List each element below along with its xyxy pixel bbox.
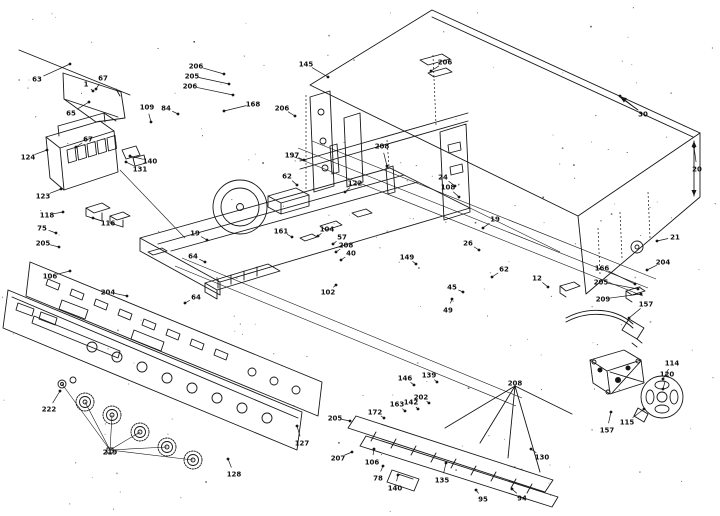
part-label-95: 95: [478, 496, 488, 504]
noise-dot: [627, 152, 628, 153]
noise-dot: [666, 137, 667, 138]
part-label-139: 139: [422, 372, 437, 380]
screw-dot: [445, 462, 448, 465]
screw-dot: [610, 411, 613, 414]
noise-dot: [550, 465, 551, 466]
noise-dot: [562, 147, 564, 149]
noise-dot: [59, 235, 60, 236]
screw-dot: [223, 73, 226, 76]
noise-dot: [636, 82, 637, 83]
noise-dot: [205, 481, 207, 483]
part-label-206: 206: [183, 83, 198, 91]
noise-dot: [328, 35, 330, 37]
noise-dot: [591, 429, 593, 431]
screw-dot: [69, 63, 72, 66]
noise-dot: [244, 56, 245, 57]
screw-dot: [373, 448, 376, 451]
screw-dot: [46, 149, 49, 152]
noise-dot: [28, 88, 29, 89]
part-label-21: 21: [670, 234, 680, 242]
part-label-205: 205: [185, 73, 200, 81]
leader-line: [224, 106, 246, 111]
knobs-drawing: [58, 377, 202, 469]
noise-dot: [420, 306, 421, 307]
noise-dot: [574, 178, 575, 179]
noise-dot: [18, 79, 20, 81]
noise-dot: [407, 180, 409, 182]
screw-dot: [59, 390, 62, 393]
noise-dot: [544, 222, 545, 223]
part-label-114: 114: [665, 360, 680, 368]
screw-dot: [404, 410, 407, 413]
part-label-75: 75: [37, 225, 47, 233]
part-label-30: 30: [638, 111, 648, 119]
part-label-78: 78: [373, 475, 383, 483]
screw-dot: [646, 269, 649, 272]
noise-dot: [619, 389, 620, 390]
screw-dot: [60, 188, 63, 191]
noise-dot: [569, 467, 570, 468]
noise-dot: [167, 434, 168, 435]
leader-line: [115, 293, 127, 296]
noise-dot: [670, 92, 672, 94]
cabinet-drawing: [310, 10, 700, 302]
screw-dot: [643, 408, 646, 411]
noise-dot: [650, 321, 652, 323]
noise-dot: [353, 59, 355, 61]
part-label-106: 106: [365, 459, 380, 467]
screw-dot: [340, 259, 343, 262]
part-label-1: 1: [84, 81, 89, 89]
part-label-102: 102: [321, 289, 336, 297]
screw-dot: [228, 83, 231, 86]
screw-dot: [478, 249, 481, 252]
noise-dot: [562, 72, 563, 73]
part-label-205: 205: [594, 279, 609, 287]
screw-dot: [92, 90, 95, 93]
noise-dot: [593, 342, 594, 343]
noise-dot: [295, 160, 296, 161]
screw-dot: [62, 211, 65, 214]
noise-dot: [234, 331, 235, 332]
noise-dot: [363, 395, 364, 396]
leader-line: [35, 150, 47, 155]
noise-dot: [551, 296, 552, 297]
noise-dot: [32, 19, 33, 20]
screw-dot: [303, 159, 306, 162]
noise-dot: [236, 278, 237, 279]
noise-dot: [504, 439, 505, 440]
part-label-197: 197: [285, 152, 300, 160]
noise-dot: [81, 93, 82, 94]
noise-dot: [559, 164, 560, 165]
screw-dot: [125, 161, 128, 164]
screw-dot: [415, 263, 418, 266]
screw-dot: [382, 465, 385, 468]
screw-dot: [227, 458, 230, 461]
noise-dot: [158, 48, 159, 49]
part-label-67: 67: [98, 75, 108, 83]
part-label-206: 206: [189, 63, 204, 71]
part-label-209: 209: [596, 296, 611, 304]
noise-dot: [108, 348, 109, 349]
noise-dot: [400, 162, 401, 163]
screw-dot: [232, 94, 235, 97]
screw-dot: [223, 110, 226, 113]
screw-dot: [317, 235, 320, 238]
noise-dot: [13, 334, 14, 335]
noise-dot: [116, 473, 118, 475]
noise-dot: [381, 454, 382, 455]
part-label-128: 128: [227, 471, 242, 479]
part-label-208: 208: [375, 143, 390, 151]
screw-dot: [92, 217, 95, 220]
noise-dot: [455, 469, 457, 471]
noise-dot: [550, 495, 551, 496]
noise-dot: [113, 509, 114, 510]
noise-dot: [92, 477, 93, 478]
leader-line: [608, 271, 635, 284]
leader-line: [50, 245, 59, 247]
noise-dot: [52, 13, 53, 14]
noise-dot: [462, 446, 463, 447]
noise-dot: [387, 230, 389, 232]
part-label-204: 204: [656, 259, 671, 267]
noise-dot: [715, 203, 716, 204]
noise-dot: [390, 511, 391, 512]
part-label-205: 205: [328, 415, 343, 423]
rear-panel-drawing: [348, 386, 572, 507]
noise-dot: [631, 64, 632, 65]
screw-dot: [344, 191, 347, 194]
part-label-135: 135: [435, 477, 450, 485]
leader-line: [312, 68, 328, 77]
screw-dot: [436, 381, 439, 384]
noise-dot: [216, 277, 218, 279]
noise-dot: [671, 217, 672, 218]
noise-dot: [193, 41, 195, 43]
part-labels-layer: 6316765124671231401311181167520520620520…: [21, 59, 702, 504]
noise-dot: [468, 387, 470, 389]
part-label-124: 124: [21, 154, 36, 162]
noise-dot: [443, 31, 444, 32]
screw-dot: [451, 298, 454, 301]
noise-dot: [105, 434, 106, 435]
screw-dot: [69, 270, 72, 273]
part-label-19: 19: [190, 230, 200, 238]
noise-dot: [410, 218, 411, 219]
noise-dot: [262, 162, 264, 164]
noise-dot: [477, 12, 478, 13]
noise-dot: [413, 218, 414, 219]
noise-dot: [453, 301, 454, 302]
noise-dot: [324, 145, 325, 146]
noise-dot: [608, 149, 609, 150]
part-label-208: 208: [339, 242, 354, 250]
part-label-94: 94: [517, 495, 527, 503]
noise-dot: [488, 435, 489, 436]
leader-line: [633, 409, 644, 418]
noise-dot: [175, 93, 176, 94]
dial-block-drawing: [46, 113, 146, 227]
noise-dot: [515, 205, 516, 206]
screw-dot: [656, 240, 659, 243]
noise-dot: [475, 222, 477, 224]
screw-dot: [634, 283, 637, 286]
part-label-131: 131: [133, 166, 148, 174]
part-label-204: 204: [101, 289, 116, 297]
noise-dot: [553, 135, 554, 136]
noise-dot: [611, 213, 613, 215]
noise-dot: [635, 277, 637, 279]
noise-dot: [573, 164, 575, 166]
screw-dot: [204, 261, 207, 264]
part-label-208: 208: [508, 380, 523, 388]
screw-dot: [327, 76, 330, 79]
part-label-108: 108: [441, 184, 456, 192]
noise-dot: [133, 363, 134, 364]
noise-dot: [306, 356, 307, 357]
screw-dot: [332, 243, 335, 246]
screw-dot: [206, 239, 209, 242]
part-label-120: 120: [660, 371, 675, 379]
part-label-67: 67: [83, 136, 93, 144]
screw-dot: [397, 474, 400, 477]
leader-line: [629, 308, 641, 318]
leader-line: [199, 77, 229, 84]
part-label-140: 140: [388, 485, 403, 493]
noise-dot: [650, 207, 651, 208]
screw-dot: [383, 417, 386, 420]
screw-dot: [619, 95, 622, 98]
screw-dot: [335, 284, 338, 287]
part-label-57: 57: [337, 234, 347, 242]
noise-dot: [264, 65, 265, 66]
diagram-canvas: 6316765124671231401311181167520520620520…: [0, 0, 720, 516]
screw-dot: [640, 293, 643, 296]
leader-line: [610, 294, 641, 298]
noise-dot: [527, 339, 528, 340]
screw-dot: [351, 451, 354, 454]
part-label-49: 49: [443, 307, 453, 315]
front-panel-drawing: [3, 262, 322, 450]
noise-dot: [541, 354, 542, 355]
screw-dot: [547, 286, 550, 289]
noise-dot: [329, 215, 330, 216]
part-label-172: 172: [368, 409, 383, 417]
noise-dot: [55, 17, 56, 18]
part-label-123: 123: [36, 193, 51, 201]
noise-dot: [591, 142, 592, 143]
noise-dot: [416, 165, 417, 166]
noise-dot: [510, 345, 511, 346]
noise-dot: [141, 320, 142, 321]
screw-dot: [150, 121, 153, 124]
screw-dot: [413, 384, 416, 387]
screw-dot: [58, 246, 61, 249]
noise-dot: [172, 419, 173, 420]
part-label-206: 206: [275, 105, 290, 113]
part-label-149: 149: [400, 254, 415, 262]
part-label-140: 140: [143, 158, 158, 166]
noise-dot: [202, 135, 203, 136]
part-label-64: 64: [188, 253, 198, 261]
screw-dot: [294, 115, 297, 118]
screw-dot: [491, 276, 494, 279]
noise-dot: [69, 503, 70, 504]
part-label-115: 115: [620, 419, 635, 427]
part-label-24: 24: [438, 174, 448, 182]
noise-dot: [240, 324, 241, 325]
noise-dot: [120, 492, 121, 493]
noise-dot: [399, 262, 400, 263]
screw-dot: [335, 251, 338, 254]
dimension-arrowheads: [620, 97, 697, 196]
noise-dot: [117, 330, 119, 332]
part-label-122: 122: [348, 180, 363, 188]
noise-dot: [698, 269, 699, 270]
noise-dot: [575, 243, 576, 244]
noise-dot: [713, 377, 714, 378]
noise-dot: [600, 220, 602, 222]
part-label-84: 84: [161, 105, 171, 113]
part-label-109: 109: [140, 104, 155, 112]
noise-dot: [640, 235, 641, 236]
screw-dot: [184, 302, 187, 305]
noise-dot: [681, 481, 682, 482]
part-label-127: 127: [295, 440, 310, 448]
noise-dot: [594, 389, 595, 390]
part-label-206: 206: [438, 59, 453, 67]
noise-dot: [255, 154, 256, 155]
screw-dot: [475, 489, 478, 492]
leader-line: [197, 87, 233, 95]
noise-dot: [418, 267, 420, 269]
noise-dot: [639, 471, 641, 473]
leader-line: [77, 102, 89, 109]
scan-noise-layer: [2, 7, 716, 512]
screw-dot: [88, 101, 91, 104]
noise-dot: [283, 206, 284, 207]
screw-dot: [637, 288, 640, 291]
noise-dot: [458, 184, 460, 186]
noise-dot: [379, 247, 380, 248]
part-label-142: 142: [404, 399, 419, 407]
part-label-20: 20: [692, 166, 702, 174]
noise-dot: [426, 381, 427, 382]
noise-dot: [334, 223, 335, 224]
rails-drawing: [120, 141, 656, 406]
screw-dot: [628, 317, 631, 320]
noise-dot: [91, 42, 92, 43]
noise-dot: [75, 462, 76, 463]
noise-dot: [4, 400, 5, 401]
noise-dot: [493, 67, 494, 68]
noise-dot: [105, 423, 106, 424]
noise-dot: [231, 199, 232, 200]
part-label-40: 40: [346, 250, 356, 258]
screw-dot: [482, 227, 485, 230]
noise-dot: [548, 483, 549, 484]
noise-dot: [180, 497, 181, 498]
part-label-207: 207: [331, 455, 346, 463]
noise-dot: [692, 350, 693, 351]
part-label-118: 118: [40, 212, 55, 220]
noise-dot: [392, 395, 393, 396]
noise-dot: [628, 37, 629, 38]
screw-dot: [511, 488, 514, 491]
noise-dot: [248, 159, 249, 160]
part-label-222: 222: [42, 406, 57, 414]
noise-dot: [158, 231, 159, 232]
noise-dot: [338, 442, 340, 444]
noise-dot: [633, 7, 634, 8]
screw-dot: [386, 165, 389, 168]
part-label-104: 104: [320, 226, 335, 234]
part-label-106: 106: [43, 273, 58, 281]
part-label-19: 19: [490, 216, 500, 224]
part-label-63: 63: [32, 76, 42, 84]
screw-dot: [129, 155, 132, 158]
noise-dot: [456, 119, 457, 120]
noise-dot: [201, 128, 202, 129]
noise-dot: [597, 344, 598, 345]
noise-dot: [621, 324, 622, 325]
noise-dot: [376, 237, 377, 238]
blower-wheel-drawing: [634, 376, 683, 422]
leader-line: [57, 271, 70, 274]
noise-dot: [242, 334, 243, 335]
screw-dot: [462, 291, 465, 294]
noise-dot: [28, 80, 29, 81]
noise-dot: [234, 316, 235, 317]
noise-dot: [690, 428, 691, 429]
screw-dot: [296, 425, 299, 428]
screw-dot: [55, 232, 58, 235]
noise-dot: [508, 261, 509, 262]
noise-dot: [542, 197, 544, 199]
leader-line: [53, 391, 60, 403]
noise-dot: [327, 55, 328, 56]
noise-dot: [255, 324, 256, 325]
noise-dot: [246, 23, 247, 24]
screw-dot: [349, 420, 352, 423]
transformer-drawing: [590, 350, 644, 394]
noise-dot: [221, 84, 222, 85]
noise-dot: [712, 48, 713, 49]
noise-dot: [657, 202, 658, 203]
screw-dot: [291, 236, 294, 239]
part-label-163: 163: [390, 401, 405, 409]
screw-dot: [458, 196, 461, 199]
leader-line: [384, 153, 387, 166]
screw-dot: [95, 88, 98, 91]
noise-dot: [35, 116, 36, 117]
noise-dot: [2, 297, 3, 298]
screw-dot: [662, 388, 665, 391]
noise-dot: [595, 115, 596, 116]
noise-dot: [67, 143, 68, 144]
screw-dot: [75, 146, 78, 149]
leader-line: [50, 189, 61, 193]
noise-dot: [490, 272, 491, 273]
noise-dot: [273, 353, 274, 354]
leader-line: [657, 239, 668, 241]
noise-dot: [487, 316, 488, 317]
noise-dot: [349, 215, 350, 216]
screw-dot: [430, 70, 433, 73]
screw-dot: [417, 408, 420, 411]
